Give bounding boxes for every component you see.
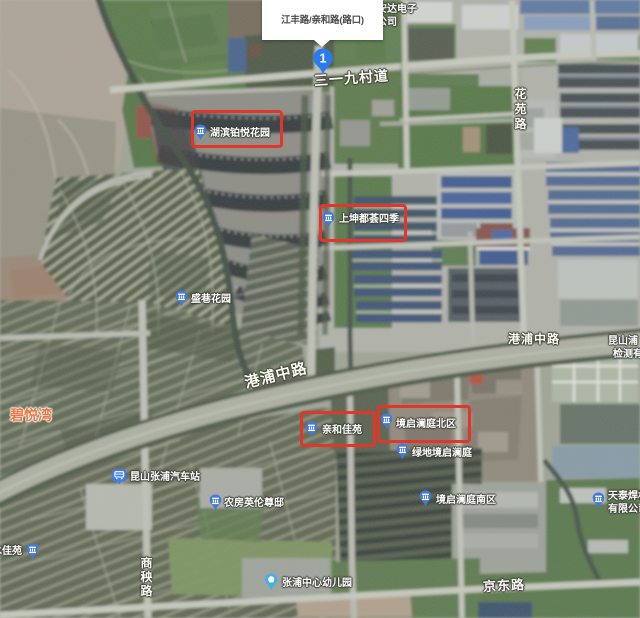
svg-text:1: 1 [320,52,327,66]
